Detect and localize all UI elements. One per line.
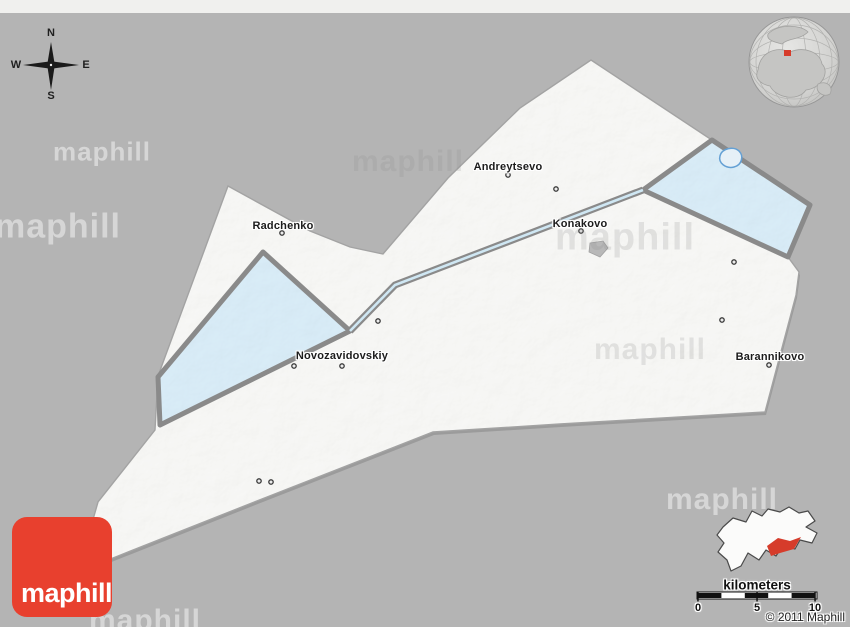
compass-west-label: W [11, 59, 21, 71]
map-page: maphill maphill maphill maphill [0, 0, 850, 627]
compass-rose-icon [23, 42, 79, 90]
scale-bar [697, 592, 817, 602]
place-label-andreytsevo: Andreytsevo [474, 161, 543, 173]
maphill-logo-text: maphill [21, 578, 112, 609]
map-canvas[interactable] [0, 0, 850, 627]
district-polygon[interactable] [78, 60, 810, 572]
place-label-novozavidovskiy: Novozavidovskiy [296, 350, 388, 362]
compass-north-label: N [47, 27, 55, 39]
region-locator-outline [717, 507, 817, 571]
lake-outline [720, 148, 742, 167]
compass-east-label: E [82, 59, 89, 71]
scale-tick-0: 0 [695, 602, 701, 614]
scale-bar-unit-label: kilometers [723, 578, 791, 593]
place-label-konakovo: Konakovo [553, 218, 608, 230]
district-land[interactable] [78, 60, 810, 572]
scale-tick-5: 5 [754, 602, 760, 614]
compass-south-label: S [47, 90, 54, 102]
place-label-radchenko: Radchenko [252, 220, 313, 232]
region-locator-map[interactable] [717, 507, 817, 571]
place-label-barannikovo: Barannikovo [736, 351, 805, 363]
globe-locator-icon[interactable] [749, 17, 839, 107]
copyright-text: © 2011 Maphill [766, 610, 845, 624]
maphill-logo[interactable]: maphill [12, 517, 112, 617]
